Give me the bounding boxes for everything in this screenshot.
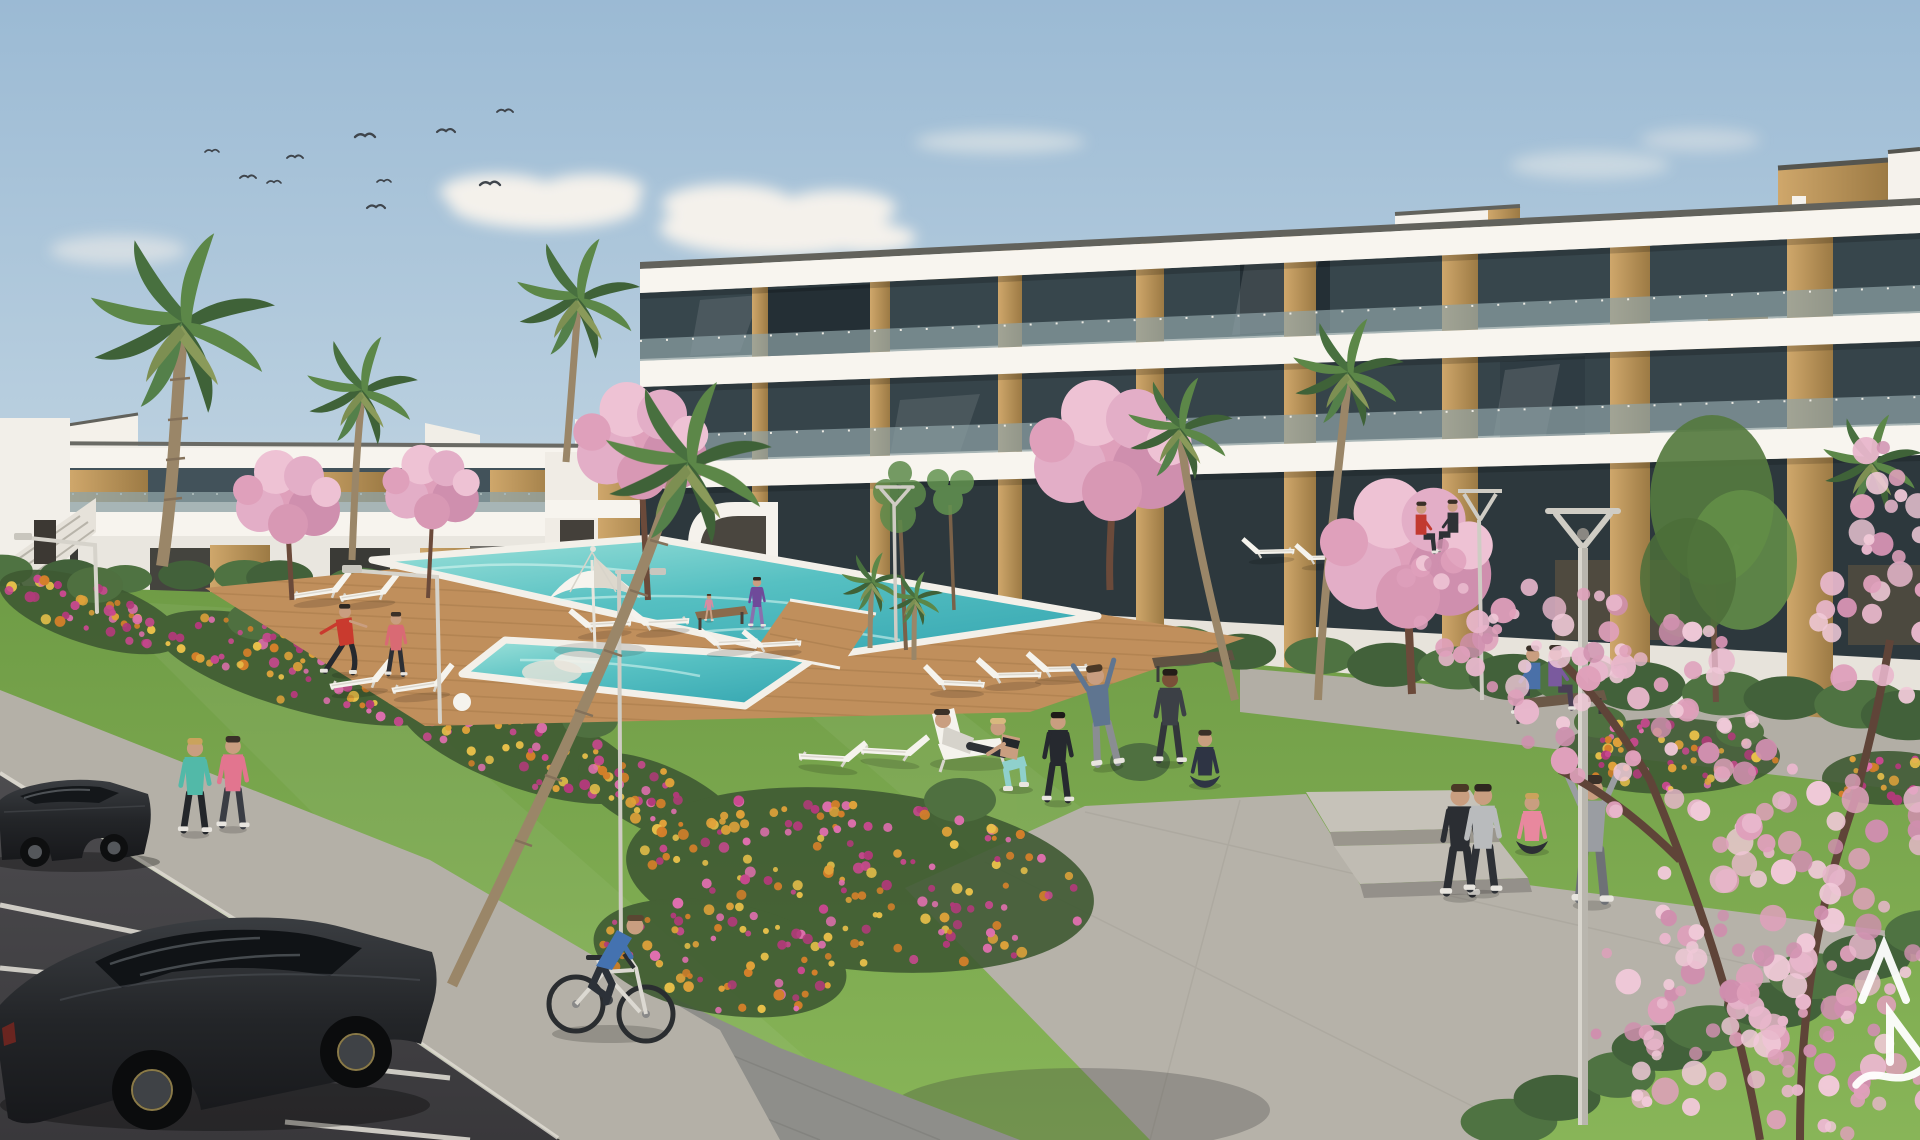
car-sedan <box>0 780 160 872</box>
render-image: Modern white apartment complex with comm… <box>0 0 1920 1140</box>
scene-svg: Modern white apartment complex with comm… <box>0 0 1920 1140</box>
